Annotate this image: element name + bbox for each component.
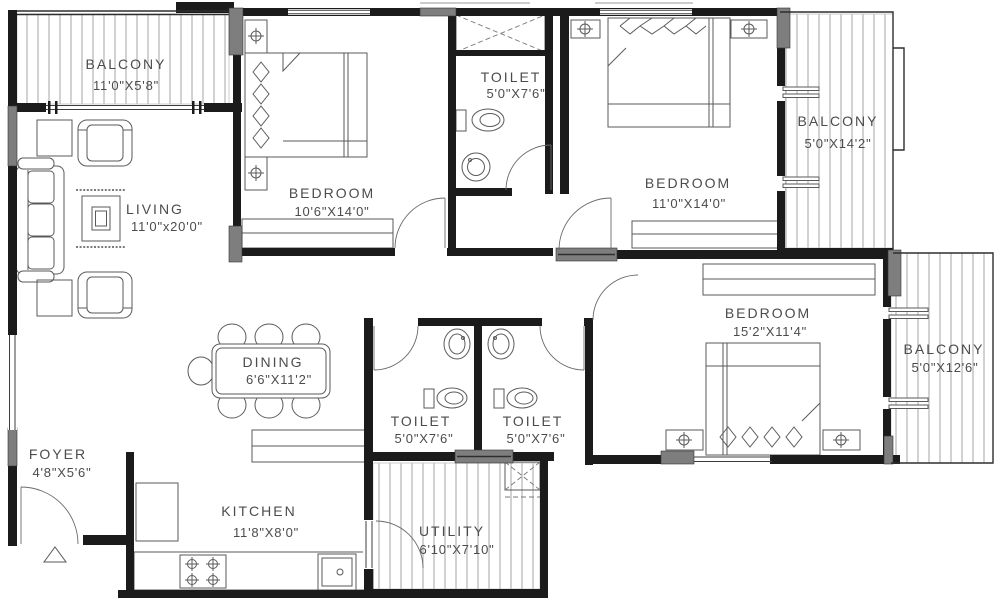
room-label-bedroom-2: BEDROOM (645, 175, 731, 191)
room-dims-foyer: 4'8"X5'6" (33, 465, 92, 480)
sliding-door (556, 248, 617, 261)
room-dims-balcony-right-upper: 5'0"X14'2" (804, 136, 871, 151)
column (661, 451, 694, 464)
room-dims-toilet-top: 5'0"X7'6" (487, 86, 546, 101)
window (889, 405, 928, 409)
column (888, 250, 901, 296)
room-label-balcony-right-lower: BALCONY (904, 341, 985, 357)
room-dims-utility: 6'10"X7'10" (419, 542, 494, 557)
room-dims-balcony-right-lower: 5'0"X12'6" (911, 360, 978, 375)
window (783, 87, 819, 91)
room-label-bedroom-3: BEDROOM (725, 305, 811, 321)
balcony-right-upper-floor (785, 14, 893, 248)
room-label-toilet-top: TOILET (481, 69, 542, 85)
column (8, 106, 17, 166)
room-label-dining: DINING (243, 354, 304, 370)
window (783, 177, 819, 181)
room-label-bedroom-1: BEDROOM (289, 185, 375, 201)
window (889, 398, 928, 402)
column (229, 8, 243, 55)
room-dims-balcony-top-left: 11'0"X5'8" (93, 78, 159, 93)
room-label-toilet-center-left: TOILET (391, 413, 452, 429)
floor-plan: BALCONY 11'0"X5'8" BEDROOM 10'6"X14'0" T… (0, 0, 1000, 600)
window (783, 94, 819, 98)
room-dims-bedroom-2: 11'0"X14'0" (652, 196, 726, 211)
window (889, 315, 928, 319)
column (420, 8, 456, 16)
dining-table-icon (212, 344, 330, 398)
sliding-door (455, 450, 513, 463)
room-label-kitchen: KITCHEN (221, 503, 296, 519)
room-label-living: LIVING (126, 201, 184, 217)
window (783, 184, 819, 188)
room-dims-living: 11'0"x20'0" (131, 219, 203, 234)
room-dims-toilet-center-right: 5'0"X7'6" (507, 431, 566, 446)
column (229, 226, 242, 262)
floor-plan-page: BALCONY 11'0"X5'8" BEDROOM 10'6"X14'0" T… (0, 0, 1000, 600)
room-dims-bedroom-3: 15'2"X11'4" (733, 324, 807, 339)
balcony-right-lower-floor (891, 253, 993, 463)
room-label-foyer: FOYER (29, 446, 87, 462)
room-label-balcony-top-left: BALCONY (86, 56, 167, 72)
column (884, 436, 893, 464)
room-dims-dining: 6'6"X11'2" (246, 372, 312, 387)
room-dims-bedroom-1: 10'6"X14'0" (294, 204, 369, 219)
column (777, 8, 790, 48)
room-label-toilet-center-right: TOILET (503, 413, 564, 429)
window (889, 308, 928, 312)
column (8, 428, 17, 466)
room-dims-kitchen: 11'8"X8'0" (233, 525, 299, 540)
room-label-balcony-right-upper: BALCONY (798, 113, 879, 129)
room-dims-toilet-center-left: 5'0"X7'6" (395, 431, 454, 446)
room-label-utility: UTILITY (419, 523, 485, 539)
